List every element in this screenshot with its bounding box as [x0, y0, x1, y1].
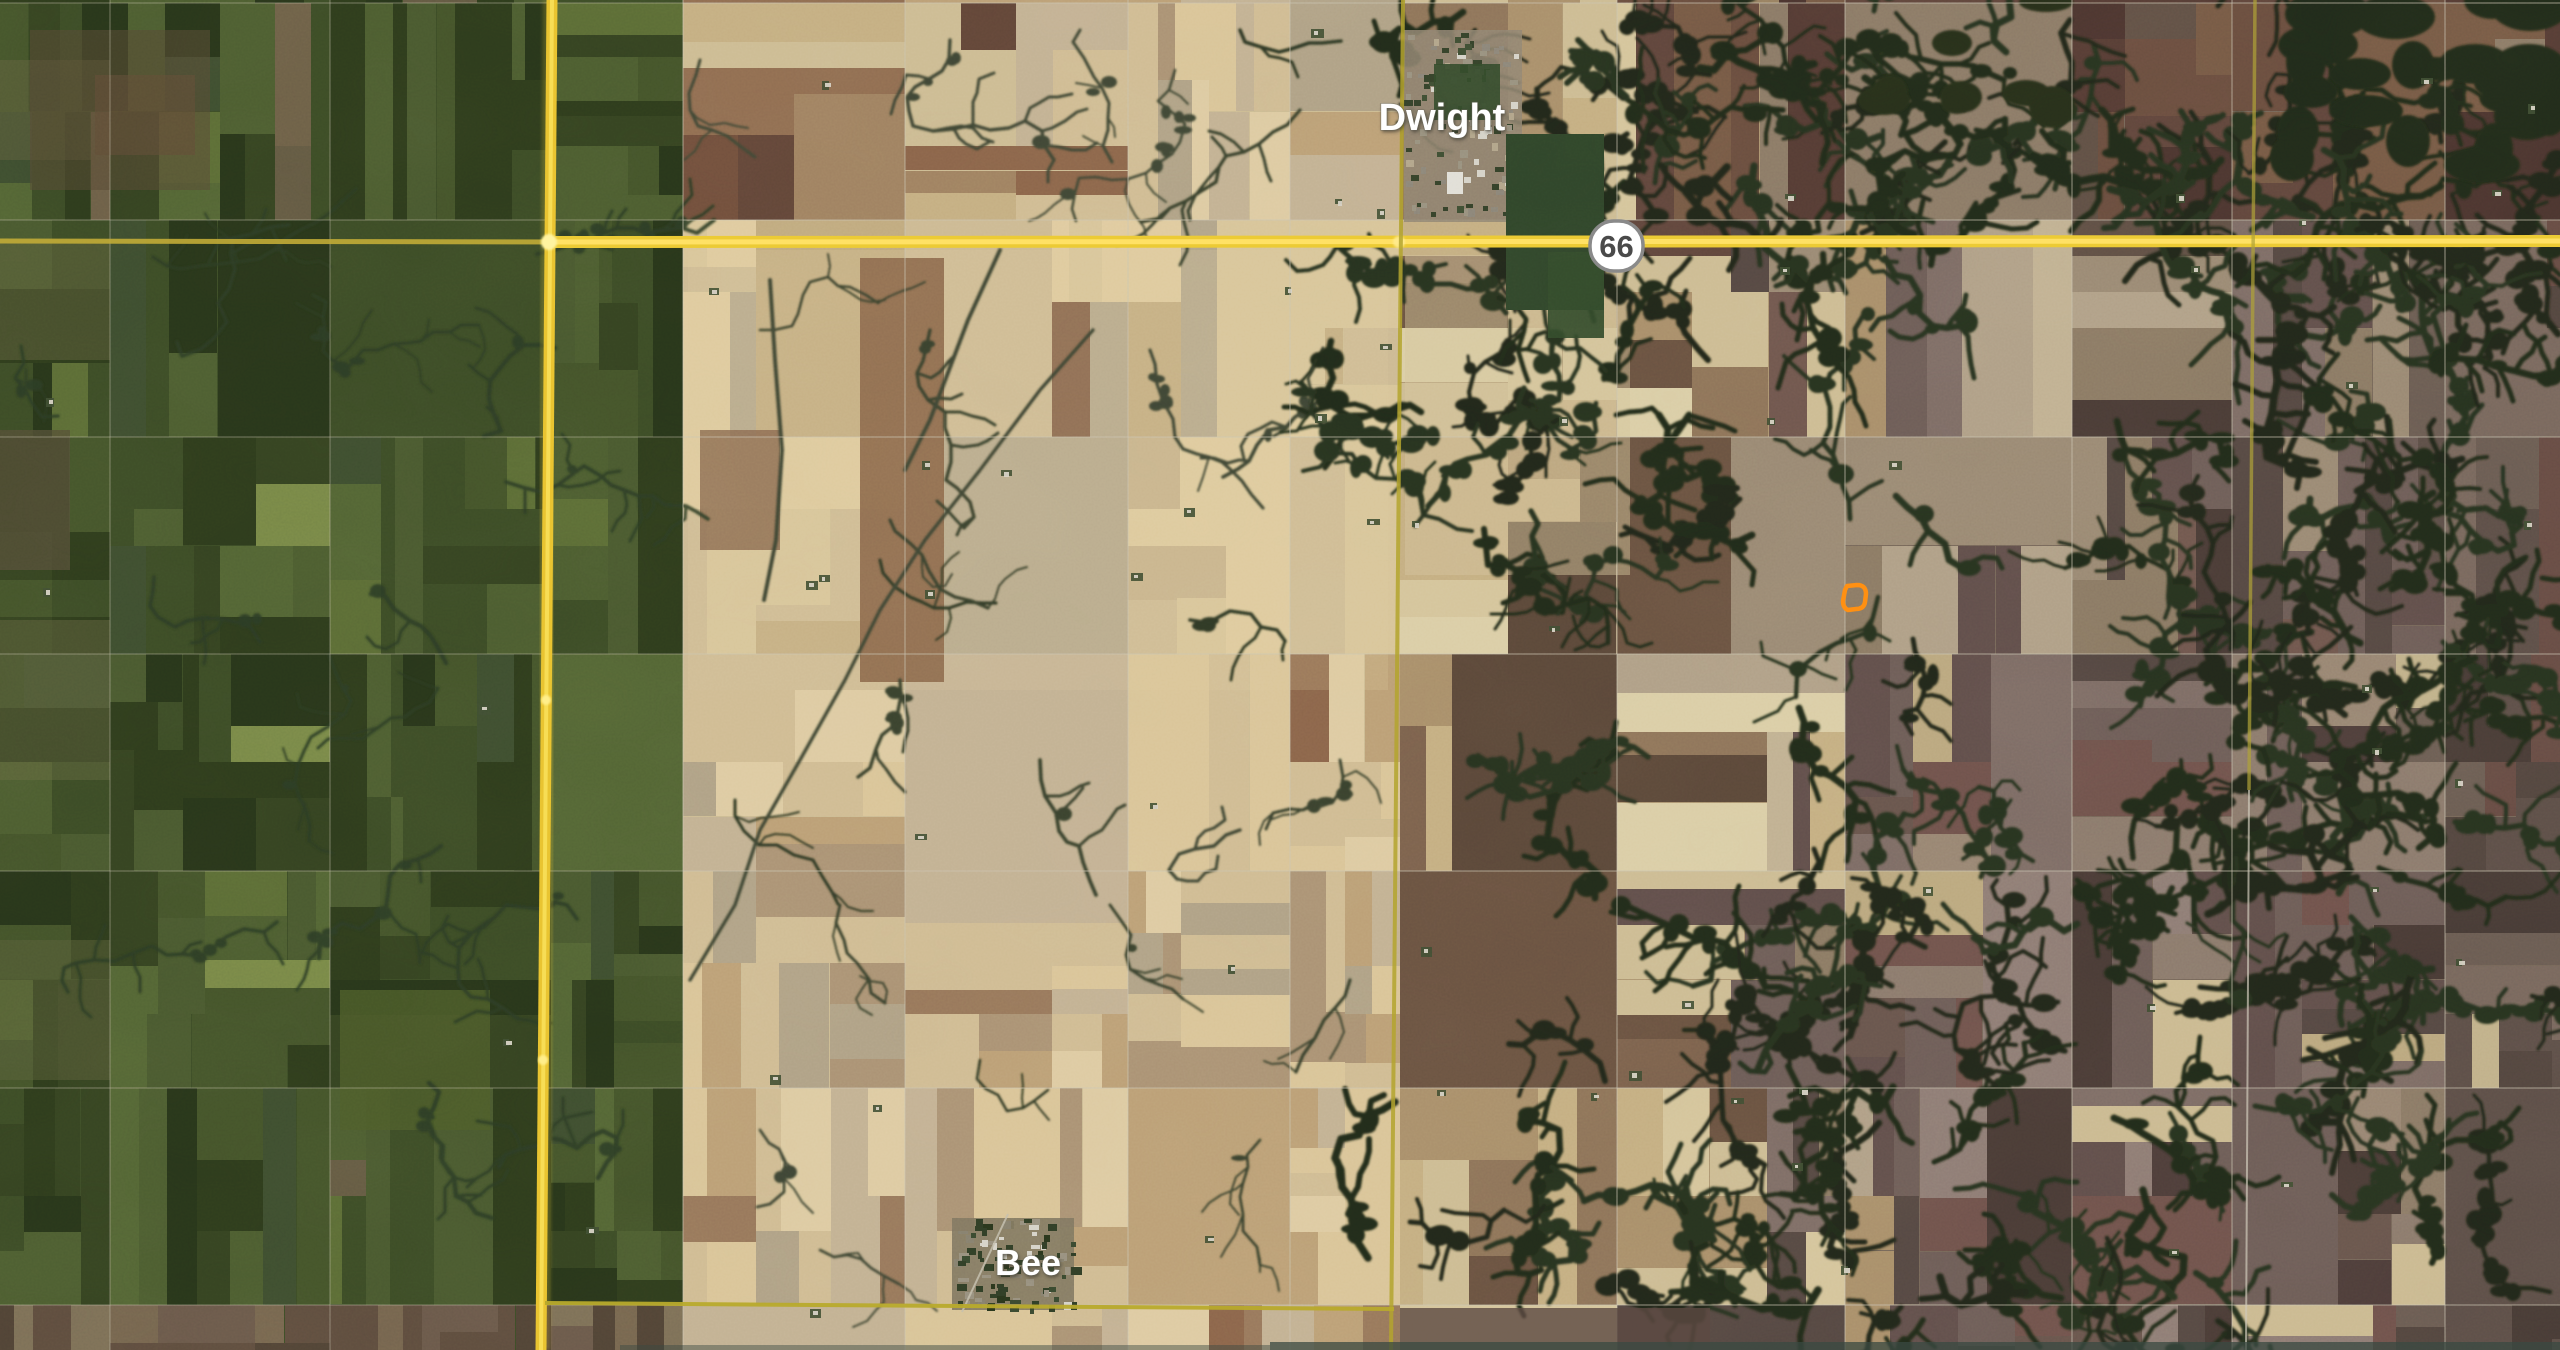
svg-text:Dwight: Dwight — [1379, 97, 1506, 139]
svg-text:Bee: Bee — [995, 1242, 1061, 1283]
svg-text:66: 66 — [1599, 229, 1633, 264]
